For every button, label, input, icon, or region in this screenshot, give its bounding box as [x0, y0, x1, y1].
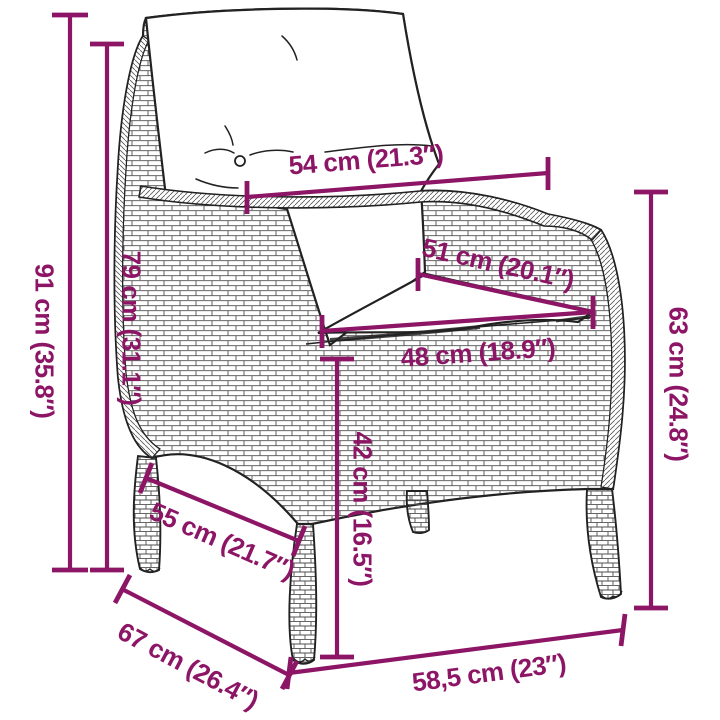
dim-label-back-height: 79 cm (31.1″) — [116, 251, 147, 406]
front-left-leg — [289, 524, 316, 664]
dim-label-total-height: 91 cm (35.8″) — [29, 264, 60, 419]
tuft-button — [235, 156, 245, 166]
dim-label-seat-height: 42 cm (16.5″) — [347, 432, 378, 587]
front-right-leg — [587, 489, 621, 599]
diagram-canvas: 91 cm (35.8″) 79 cm (31.1″) 54 cm (21.3″… — [0, 0, 720, 720]
back-right-leg — [407, 491, 429, 533]
dim-label-armrest-height: 63 cm (24.8″) — [663, 307, 694, 462]
armchair-line-art — [0, 0, 720, 720]
